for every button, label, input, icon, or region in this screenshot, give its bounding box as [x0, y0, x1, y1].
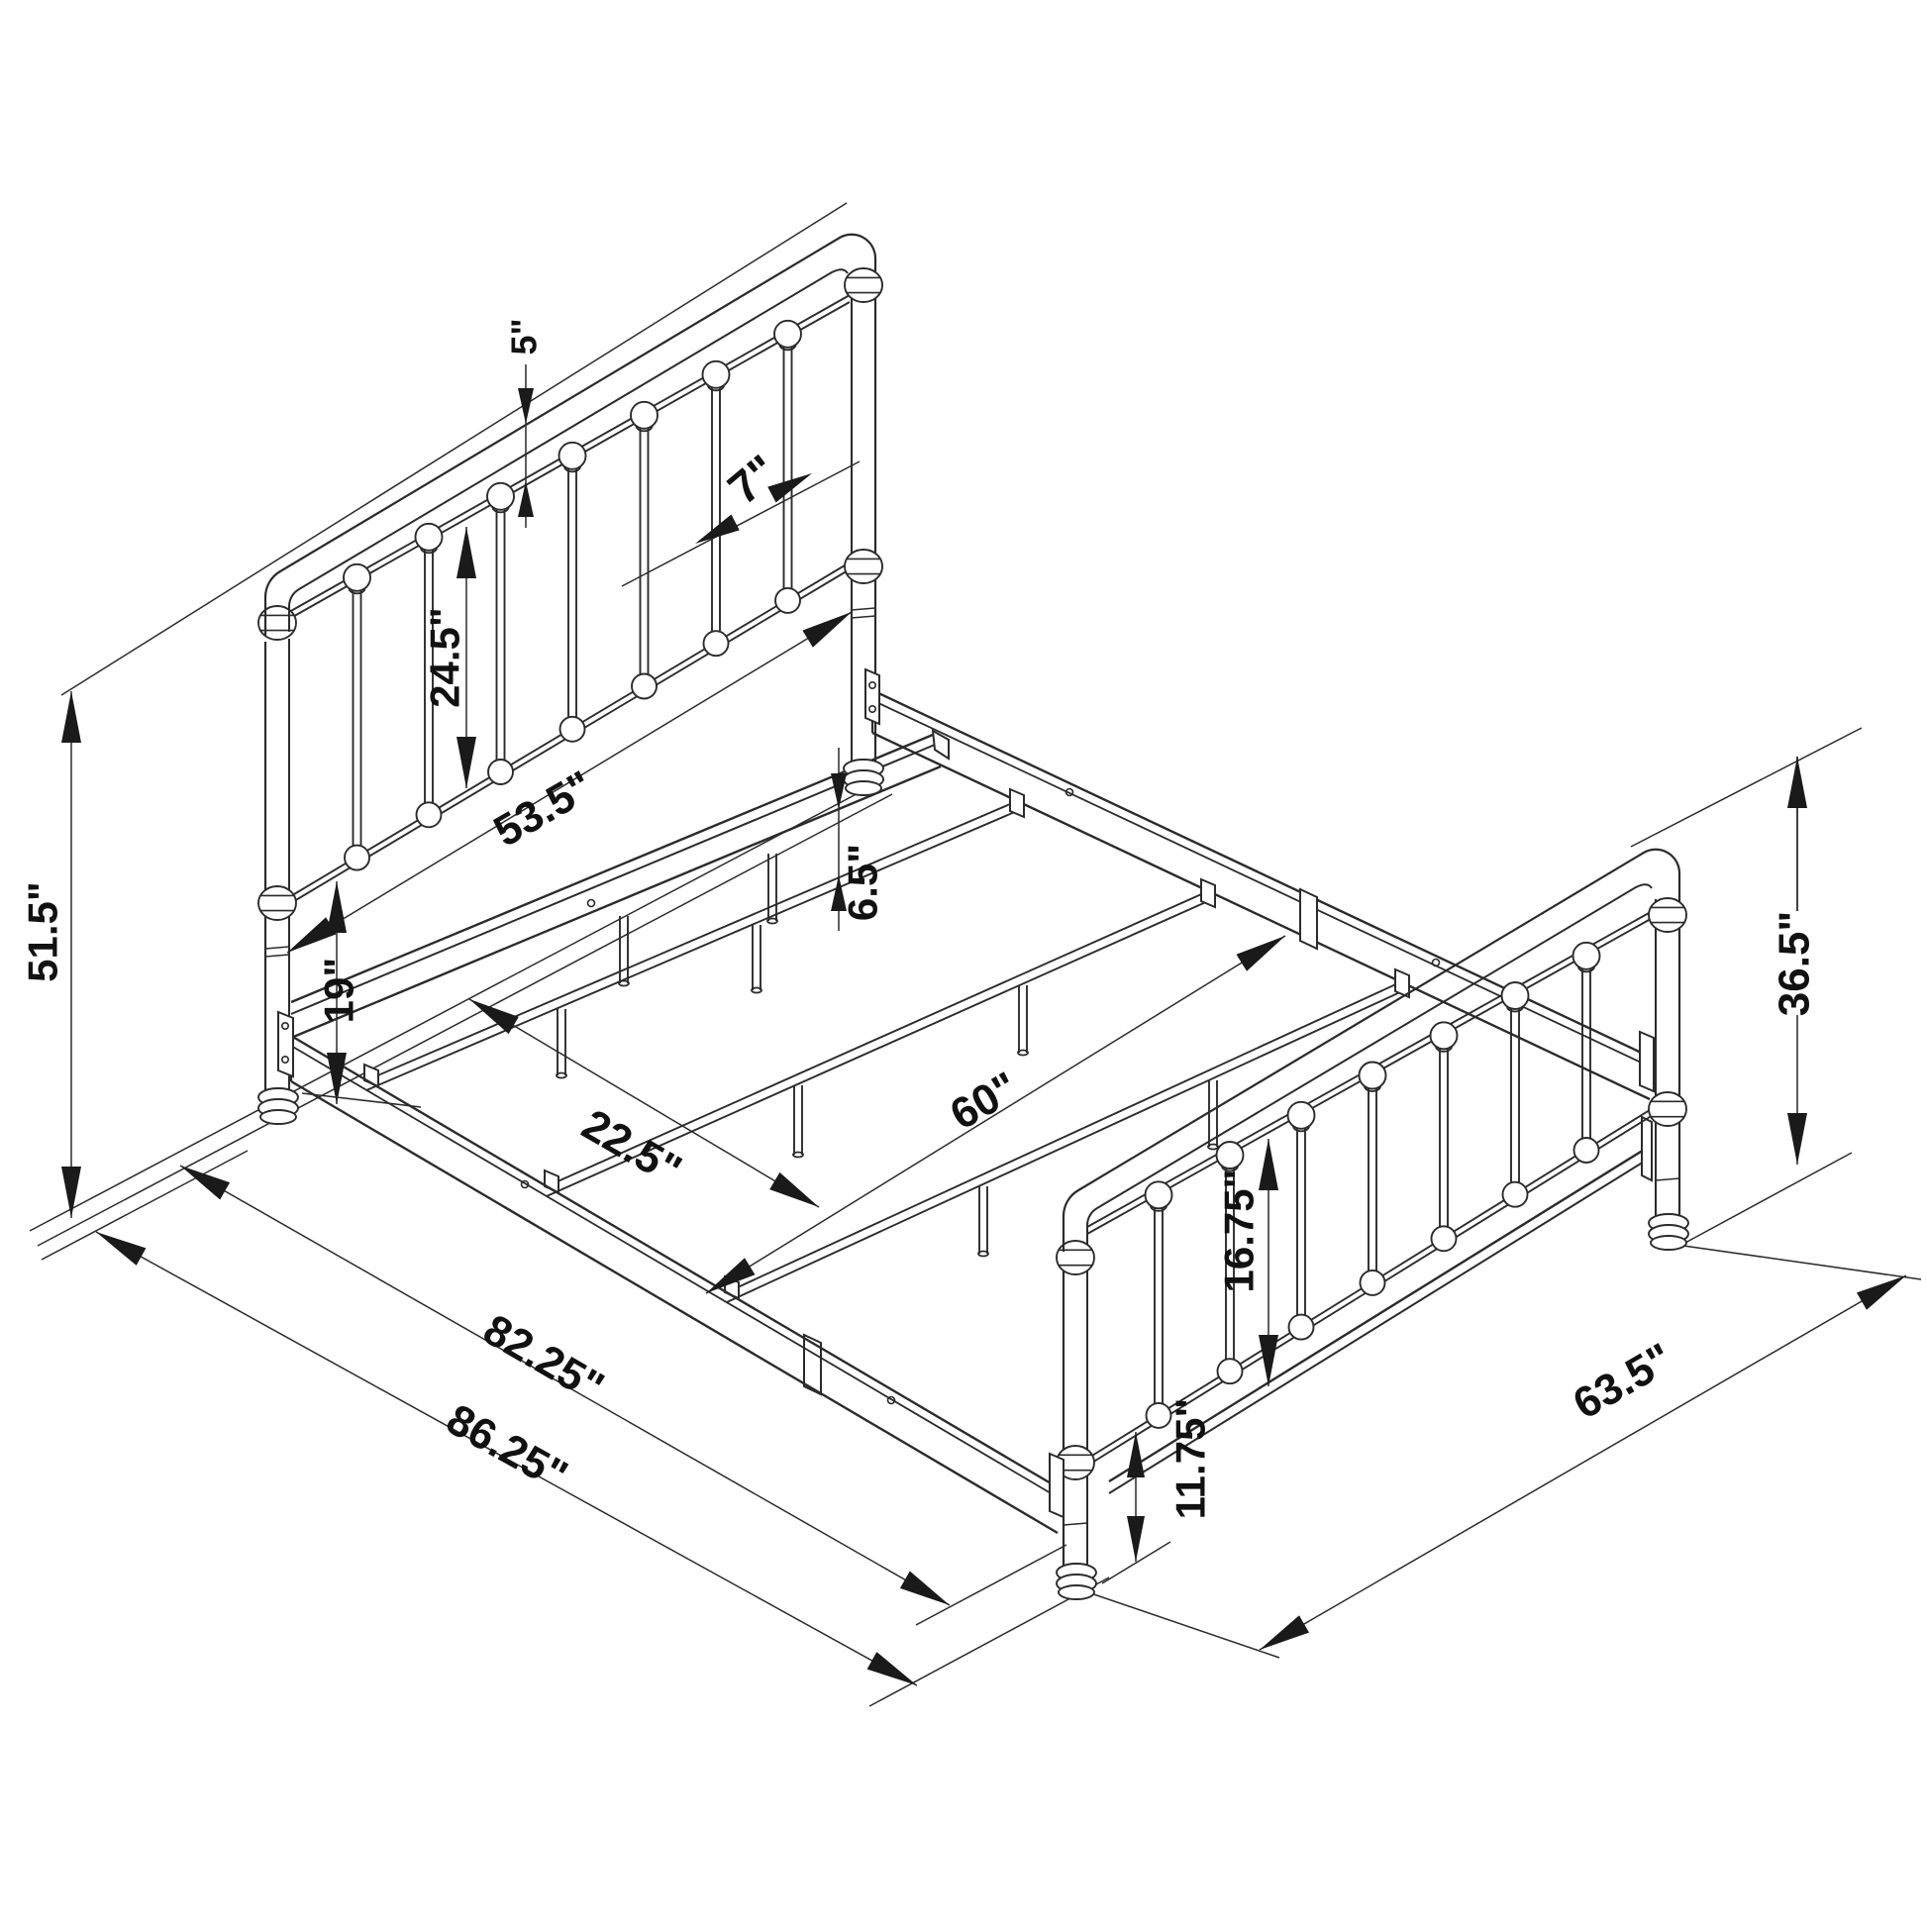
svg-text:24.5": 24.5" [422, 607, 468, 708]
svg-text:16.75": 16.75" [1216, 1169, 1263, 1292]
svg-text:36.5": 36.5" [1771, 911, 1819, 1017]
svg-text:51.5": 51.5" [20, 881, 66, 982]
svg-text:5": 5" [504, 318, 545, 355]
svg-text:6.5": 6.5" [840, 844, 886, 921]
svg-text:19": 19" [316, 958, 362, 1024]
svg-text:11.75": 11.75" [1167, 1398, 1214, 1520]
